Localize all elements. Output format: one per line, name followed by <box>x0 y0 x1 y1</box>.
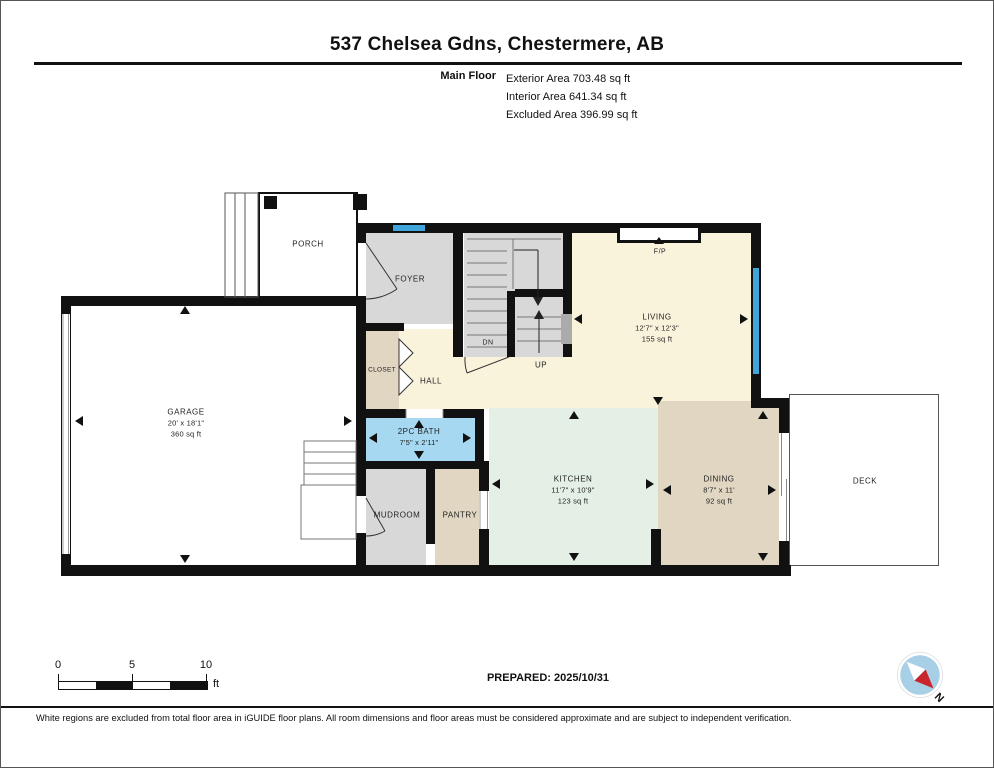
label-bath: 2PC BATH 7'5" x 2'11" <box>398 426 441 448</box>
label-kitchen: KITCHEN 11'7" x 10'9" 123 sq ft <box>551 474 594 507</box>
garage-door-lines <box>62 314 70 554</box>
label-foyer: FOYER <box>395 274 425 285</box>
plan-linework <box>1 1 994 768</box>
label-deck: DECK <box>853 476 877 487</box>
stair-direction-arrows <box>514 250 544 353</box>
label-dn: DN <box>482 340 493 347</box>
label-garage: GARAGE 20' x 18'1" 360 sq ft <box>167 407 204 440</box>
label-hall: HALL <box>420 376 442 387</box>
fireplace-tick <box>654 237 664 244</box>
label-mudroom: MUDROOM <box>374 510 421 521</box>
label-closet: CLOSET <box>368 367 396 374</box>
label-living: LIVING 12'7" x 12'3" 155 sq ft <box>635 312 679 345</box>
label-porch: PORCH <box>292 239 323 250</box>
label-dining: DINING 8'7" x 11' 92 sq ft <box>703 474 735 507</box>
floorplan-page: 537 Chelsea Gdns, Chestermere, AB Main F… <box>0 0 994 768</box>
label-pantry: PANTRY <box>443 510 478 521</box>
label-fireplace: F/P <box>654 249 666 256</box>
garage-stairs <box>301 441 356 539</box>
label-up: UP <box>535 360 547 371</box>
stair-steps <box>467 239 561 347</box>
porch-steps <box>225 193 258 297</box>
